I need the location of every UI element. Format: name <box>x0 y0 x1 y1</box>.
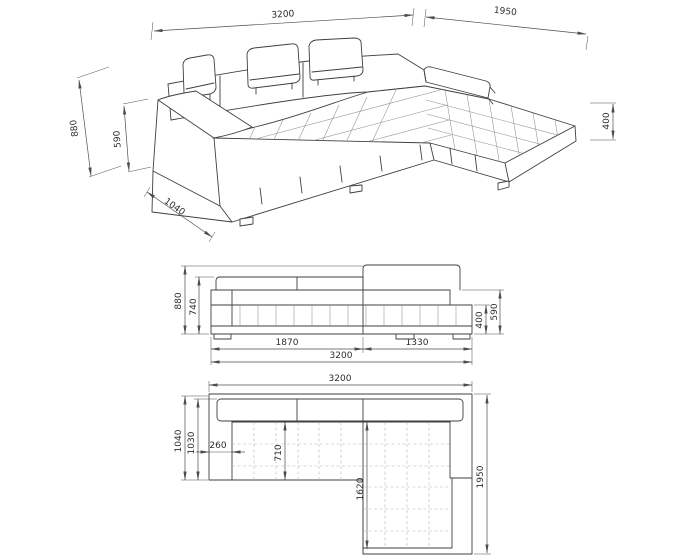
elevation-headrest-divider <box>297 277 363 290</box>
dim-label-plan-seat-depth: 710 <box>274 444 284 461</box>
seat-top-surface <box>213 86 575 163</box>
plan-dimensions: 3200 1040 1030 260 710 1620 1950 <box>174 374 491 554</box>
headrest-cushions <box>183 38 363 103</box>
technical-drawing-canvas: 3200 1950 880 590 1040 400 <box>0 0 700 560</box>
dim-label-front-seat-height: 400 <box>475 311 485 328</box>
dim-label-front-back-height: 740 <box>189 298 199 315</box>
sofa-foot <box>498 181 509 190</box>
front-elevation-view: 880 740 400 590 1870 1330 3200 <box>174 265 504 365</box>
elevation-headrest-band <box>216 277 363 290</box>
dim-label-plan-total-width: 3200 <box>329 374 352 384</box>
plan-backrest-dividers <box>297 399 363 421</box>
sofa-foot <box>350 185 362 193</box>
elevation-foot <box>214 334 231 339</box>
plan-outline <box>209 394 472 554</box>
dim-label-armrest-height: 590 <box>112 130 123 148</box>
back-right-connector <box>398 54 424 70</box>
dim-label-seat-height: 400 <box>602 112 612 129</box>
front-dimensions: 880 740 400 590 1870 1330 3200 <box>174 266 504 365</box>
elevation-quilt-seams <box>240 305 456 326</box>
sofa-foot <box>240 217 253 226</box>
dim-label-front-total-width: 3200 <box>330 351 353 361</box>
dim-label-chaise-depth: 1950 <box>493 6 517 19</box>
plan-quilt-grid <box>232 422 452 548</box>
dim-label-front-chaise-width: 1330 <box>406 338 429 348</box>
plan-backrest-band <box>217 399 463 421</box>
dim-label-plan-chaise-length: 1620 <box>356 477 366 500</box>
dim-label-plan-depth: 1040 <box>174 429 184 452</box>
elevation-foot <box>453 334 470 339</box>
dim-label-total-height: 880 <box>69 119 81 138</box>
dim-label-front-armrest-height: 590 <box>490 303 500 320</box>
dim-label-front-total-height: 880 <box>174 292 184 309</box>
elevation-tall-back <box>363 265 460 290</box>
elevation-body <box>211 290 472 334</box>
plan-view: 3200 1040 1030 260 710 1620 1950 <box>174 374 491 554</box>
technical-drawing-page: 3200 1950 880 590 1040 400 <box>0 0 700 560</box>
perspective-view: 3200 1950 880 590 1040 400 <box>69 6 616 242</box>
dim-label-plan-armrest-width: 260 <box>209 441 226 451</box>
plan-chaise-edges <box>363 421 472 554</box>
elevation-seat-and-plinth-lines <box>211 305 472 326</box>
dim-label-front-sofa-width: 1870 <box>276 338 299 348</box>
dim-label-plan-inner-depth: 1030 <box>187 431 197 454</box>
dim-label-plan-total-depth: 1950 <box>476 465 486 488</box>
dim-label-width: 3200 <box>271 9 295 20</box>
